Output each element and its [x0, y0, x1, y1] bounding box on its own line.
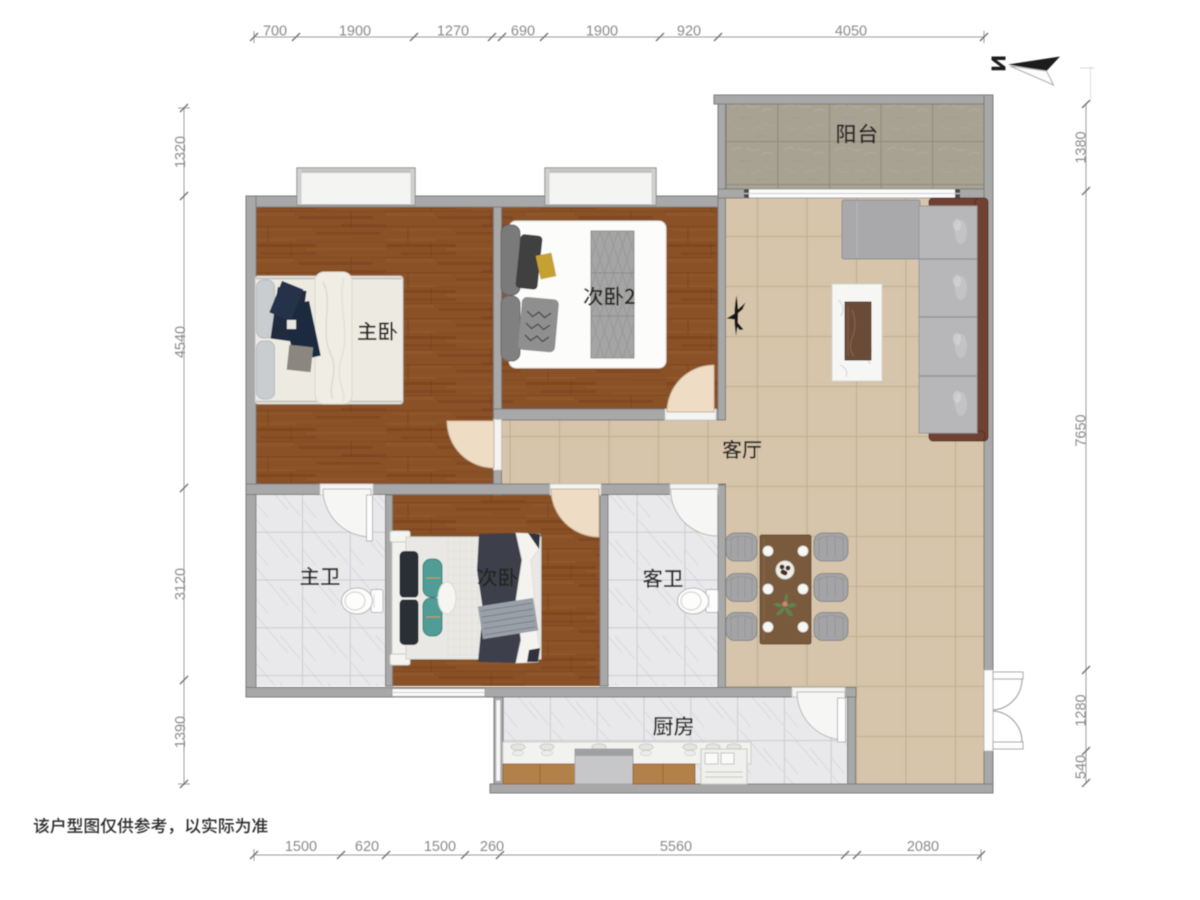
svg-text:1320: 1320 [173, 136, 189, 168]
svg-text:4050: 4050 [835, 23, 867, 39]
svg-text:540: 540 [1074, 755, 1090, 779]
svg-text:2080: 2080 [907, 839, 939, 855]
svg-text:3120: 3120 [173, 568, 189, 600]
svg-text:1900: 1900 [339, 23, 371, 39]
svg-text:1280: 1280 [1074, 694, 1090, 726]
svg-text:1900: 1900 [586, 23, 618, 39]
svg-text:1270: 1270 [437, 23, 469, 39]
svg-text:1380: 1380 [1074, 131, 1090, 163]
svg-text:5560: 5560 [660, 839, 692, 855]
svg-text:1500: 1500 [424, 839, 456, 855]
svg-text:7650: 7650 [1074, 414, 1090, 446]
svg-text:1500: 1500 [285, 839, 317, 855]
svg-text:920: 920 [677, 23, 701, 39]
svg-text:260: 260 [480, 839, 504, 855]
svg-text:1390: 1390 [173, 716, 189, 748]
svg-text:4540: 4540 [173, 326, 189, 358]
svg-text:620: 620 [355, 839, 379, 855]
svg-text:700: 700 [263, 23, 287, 39]
svg-text:690: 690 [511, 23, 535, 39]
